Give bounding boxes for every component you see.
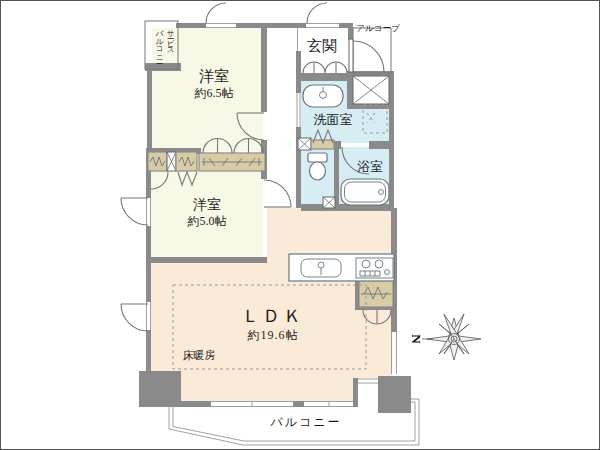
ldk-name: ＬＤＫ <box>242 306 305 326</box>
compass-north-label: N <box>409 334 424 344</box>
entrance-label: 玄関 <box>298 37 346 56</box>
balcony-label: バルコニー <box>246 415 366 430</box>
alcove-label: アルコーブ <box>353 23 403 34</box>
kitchen-counter <box>289 254 394 281</box>
bathtub-icon <box>341 179 389 205</box>
compass-icon: N <box>409 314 481 360</box>
ldk-label: ＬＤＫ 約19.6帖 <box>213 305 333 343</box>
floorplan: N サービス バルコニー 洋室 約6.5帖 玄関 アルコーブ 洗面室 浴室 洋室… <box>0 0 600 450</box>
entrance-door-arc <box>353 41 384 72</box>
washroom-label: 洗面室 <box>303 112 363 128</box>
bathroom-label: 浴室 <box>348 159 392 175</box>
pipe-shaft-icon <box>353 76 389 104</box>
service-balcony-label: サービス バルコニー <box>150 25 176 69</box>
bedroom2-size: 約5.0帖 <box>157 214 257 229</box>
ldk-size: 約19.6帖 <box>213 328 333 343</box>
bedroom1-label: 洋室 約6.5帖 <box>164 67 264 101</box>
toilet-icon <box>308 153 327 180</box>
alcove-box <box>353 28 391 73</box>
vanity-sink-icon <box>303 85 343 107</box>
bedroom1-size: 約6.5帖 <box>164 86 264 101</box>
bedroom1-name: 洋室 <box>199 68 229 84</box>
floorplan-drawing: N <box>1 1 599 449</box>
floor-heating-label: 床暖房 <box>169 349 229 363</box>
bedroom2-name: 洋室 <box>193 197 221 212</box>
bedroom2-label: 洋室 約5.0帖 <box>157 196 257 229</box>
entrance-door-leaf <box>349 39 353 72</box>
